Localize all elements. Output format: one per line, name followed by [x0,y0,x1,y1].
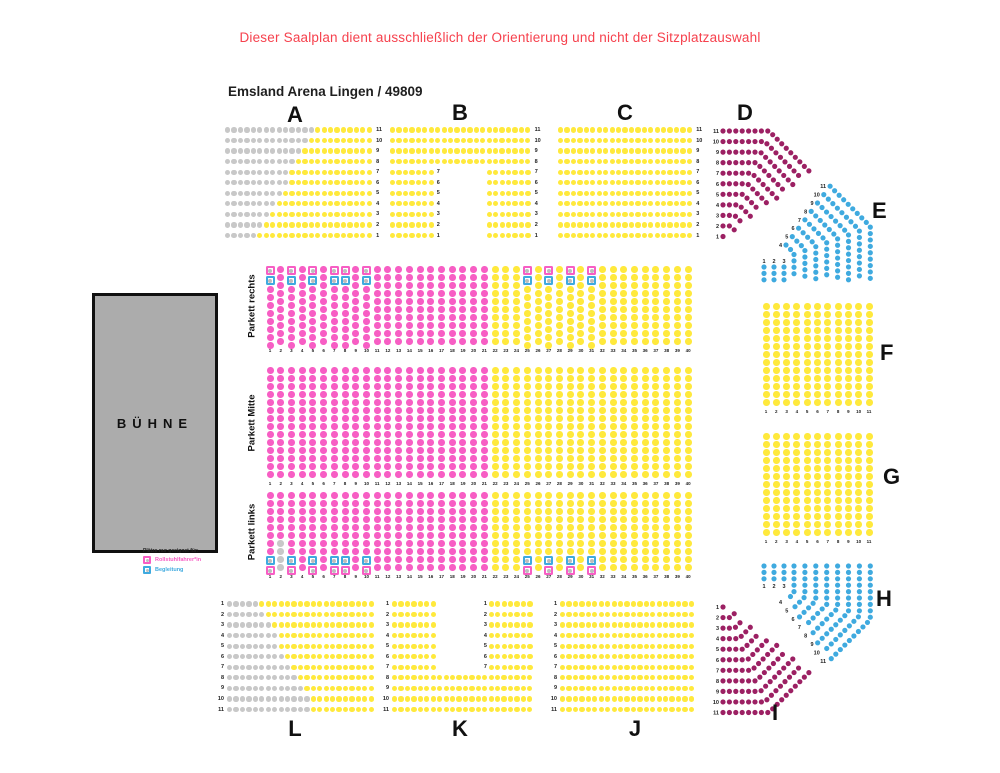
seat-row [723,237,727,238]
seat [459,500,466,507]
row-number: 6 [213,654,227,660]
column-number: 31 [588,348,596,353]
seat [291,696,296,701]
seat [524,548,531,555]
parkett-column [448,266,456,346]
row-number: 8 [373,159,379,165]
seat [411,707,416,712]
seat [620,367,627,374]
seat [652,274,659,281]
seat [814,481,821,488]
seat [524,294,531,301]
seat [470,415,477,422]
seat-row-L-5: 5 [213,643,375,649]
seat [824,375,831,382]
seat [616,191,621,196]
seat [685,455,692,462]
seat-column [834,433,842,537]
seat [253,622,258,627]
seat [392,601,397,606]
seat [463,686,468,691]
seat [783,449,790,456]
seat [299,282,306,289]
seat [845,465,852,472]
seat [535,439,542,446]
seat [642,423,649,430]
seat [267,471,274,478]
row-number: 9 [213,685,227,691]
seat [590,138,595,143]
seat [437,675,442,680]
column-number: 39 [673,348,681,353]
seat [814,449,821,456]
parkett-column [320,492,328,572]
seat [489,633,494,638]
seat [773,375,780,382]
row-number: 3 [716,626,719,632]
seat [288,334,295,341]
seat [855,505,862,512]
seat [257,180,262,185]
seat [302,191,307,196]
seat [285,633,290,638]
column-number: 8 [341,481,349,486]
seat [384,314,391,321]
column-number: 15 [416,574,424,579]
seat [635,233,640,238]
seat [610,492,617,499]
seat [266,665,271,670]
seat [521,644,526,649]
seat [251,159,256,164]
seat [676,633,681,638]
seat [783,521,790,528]
seat [277,338,284,345]
seat [545,326,552,333]
seat [687,191,692,196]
seat [502,314,509,321]
parkett-column [598,492,606,572]
column-number: 36 [641,574,649,579]
seat [502,367,509,374]
column-number: 8 [834,539,842,544]
seat [272,675,277,680]
companion-seat-icon [308,276,317,285]
column-number: 21 [480,481,488,486]
seat [599,306,606,313]
seat [298,612,303,617]
parkett-column [652,492,660,572]
seat [599,375,606,382]
seat [492,471,499,478]
seat [616,138,621,143]
seat [277,423,284,430]
seat [374,447,381,454]
seat-row-B-5: 55 [390,190,538,196]
seat [502,431,509,438]
seat [279,601,284,606]
seat [264,138,269,143]
seat-column [793,303,801,407]
seat [558,201,563,206]
seat [620,306,627,313]
row-gap [437,614,482,615]
column-number: 27 [545,481,553,486]
column-number: 14 [405,348,413,353]
seat [855,351,862,358]
seat [793,319,800,326]
seat [588,391,595,398]
seat [299,306,306,313]
seat [519,180,524,185]
seat [644,654,649,659]
seat [514,612,519,617]
column-number: 6 [814,409,822,414]
seat [225,222,230,227]
seat [449,298,456,305]
seat [304,686,309,691]
seat [288,492,295,499]
seat [253,686,258,691]
seat [642,431,649,438]
seat [642,290,649,297]
seat-row-J-4: 4 [546,633,695,639]
seat [610,159,615,164]
seat [259,644,264,649]
parkett-column [609,266,617,346]
seat [637,686,642,691]
seat [481,391,488,398]
seat [233,696,238,701]
seat [567,492,574,499]
seat [342,367,349,374]
seat [315,138,320,143]
seat [349,601,354,606]
seat [429,222,434,227]
seat [556,548,563,555]
seat [618,675,623,680]
seat [657,633,662,638]
seat [567,439,574,446]
seat [374,399,381,406]
seat [279,612,284,617]
seat [396,180,401,185]
seat [599,665,604,670]
seat [416,222,421,227]
seat [506,191,511,196]
seat [422,138,427,143]
seat [352,330,359,337]
companion-seat-icon [330,556,339,565]
column-number: 37 [652,574,660,579]
seat [680,191,685,196]
seat [270,159,275,164]
column-number: 28 [555,574,563,579]
seat [493,180,498,185]
row-number: 7 [716,171,719,177]
seat [824,351,831,358]
seat [417,274,424,281]
seat [674,524,681,531]
seat [824,521,831,528]
seat [298,686,303,691]
seat [347,191,352,196]
seat [480,148,485,153]
seat [495,644,500,649]
seat-row [723,606,727,607]
seat [845,489,852,496]
seat [556,455,563,462]
seat [676,665,681,670]
row-number: 8 [716,679,719,685]
seat [501,707,506,712]
seat [783,375,790,382]
seat [417,322,424,329]
seat [362,622,367,627]
seat [459,375,466,382]
seat [395,516,402,523]
seat [824,497,831,504]
seat [251,233,256,238]
column-number: 2 [277,348,285,353]
seat [674,399,681,406]
seat [279,675,284,680]
seat [824,465,831,472]
seat [513,463,520,470]
seat [599,532,606,539]
seat [845,505,852,512]
seat [406,447,413,454]
seat [429,159,434,164]
seat [599,601,604,606]
seat [449,548,456,555]
seat [328,127,333,132]
parkett-column [502,492,510,572]
seat [317,707,322,712]
seat [487,191,492,196]
seat [343,622,348,627]
column-number: 24 [513,574,521,579]
seat [616,233,621,238]
column-number: 19 [459,481,467,486]
seat [309,399,316,406]
seat [556,564,563,571]
seat [657,644,662,649]
parkett-column [630,266,638,346]
seat [448,127,453,132]
seat [667,191,672,196]
seat [427,322,434,329]
parkett-column [427,492,435,572]
seat [599,654,604,659]
seat [422,127,427,132]
column-number: 2 [277,574,285,579]
parkett-column [684,367,692,479]
seat [558,180,563,185]
seat [661,212,666,217]
seat [610,516,617,523]
seat [622,170,627,175]
seat [395,431,402,438]
seat [347,170,352,175]
seat [513,322,520,329]
seat [267,447,274,454]
seat [324,622,329,627]
seat [309,516,316,523]
seat [763,465,770,472]
seat [352,383,359,390]
column-number: 7 [824,409,832,414]
seat [556,463,563,470]
seat [635,127,640,132]
seat [676,707,681,712]
seat [674,159,679,164]
column-number: 30 [577,481,585,486]
seat [793,473,800,480]
seat [793,529,800,536]
seat [427,383,434,390]
seat [427,540,434,547]
parkett-column [555,266,563,346]
seat [416,233,421,238]
seat [354,212,359,217]
seat [579,633,584,638]
seat [866,521,873,528]
seat [431,675,436,680]
seat [448,138,453,143]
seat [618,654,623,659]
seat [620,548,627,555]
seat [590,233,595,238]
seat [502,644,507,649]
seat [291,633,296,638]
seat [291,644,296,649]
seat [482,696,487,701]
seat [622,127,627,132]
seat [499,127,504,132]
seat [663,532,670,539]
seat [685,556,692,563]
seat [590,212,595,217]
seat [535,463,542,470]
seat [866,327,873,334]
seat [642,391,649,398]
seat [405,686,410,691]
seat [577,564,584,571]
seat [492,298,499,305]
seat [267,532,274,539]
legend-item-companion: Begleitung [143,566,201,574]
seat [360,191,365,196]
wheelchair-seat-icon [330,266,339,275]
seat [682,601,687,606]
seat [512,127,517,132]
column-number: 24 [513,481,521,486]
seat-row [818,203,849,280]
seat [342,391,349,398]
seat [835,311,842,318]
seat [610,524,617,531]
seat [369,612,374,617]
parkett-column [502,266,510,346]
seat-row [723,215,744,224]
seat [334,191,339,196]
seat [545,548,552,555]
seat [384,306,391,313]
seat [527,696,532,701]
seat [567,431,574,438]
seat [395,556,402,563]
column-number: 25 [523,348,531,353]
seat [341,222,346,227]
seat [783,399,790,406]
seat [392,665,397,670]
seat [304,696,309,701]
seat [266,622,271,627]
seat [773,391,780,398]
seat [492,431,499,438]
column-number: 31 [588,574,596,579]
seat [763,399,770,406]
seat [642,492,649,499]
seat [405,633,410,638]
seat [459,455,466,462]
seat [556,556,563,563]
parkett-column [341,266,349,350]
seat [470,447,477,454]
seat [277,540,284,547]
column-number: 33 [609,348,617,353]
seat [277,266,284,273]
seat [652,282,659,289]
seat [599,540,606,547]
seat [680,127,685,132]
seat [535,556,542,563]
seat [642,548,649,555]
seat [663,330,670,337]
seat [674,463,681,470]
seat [642,266,649,273]
seat [298,696,303,701]
seat [403,180,408,185]
seat [270,138,275,143]
seat [289,191,294,196]
seat [674,375,681,382]
seat [427,532,434,539]
row-number: 1 [716,235,719,241]
seat [341,212,346,217]
seat [845,335,852,342]
seat [573,601,578,606]
seat [674,148,679,153]
parkett-column [620,367,628,479]
seat [648,180,653,185]
seat [674,447,681,454]
seat [347,138,352,143]
seat [227,622,232,627]
seat [354,170,359,175]
seat [644,644,649,649]
seat [363,532,370,539]
seat [631,439,638,446]
seat [590,191,595,196]
parkett-column [663,266,671,346]
seat [588,492,595,499]
seat [352,290,359,297]
seat [492,306,499,313]
seat [519,212,524,217]
seat [427,399,434,406]
